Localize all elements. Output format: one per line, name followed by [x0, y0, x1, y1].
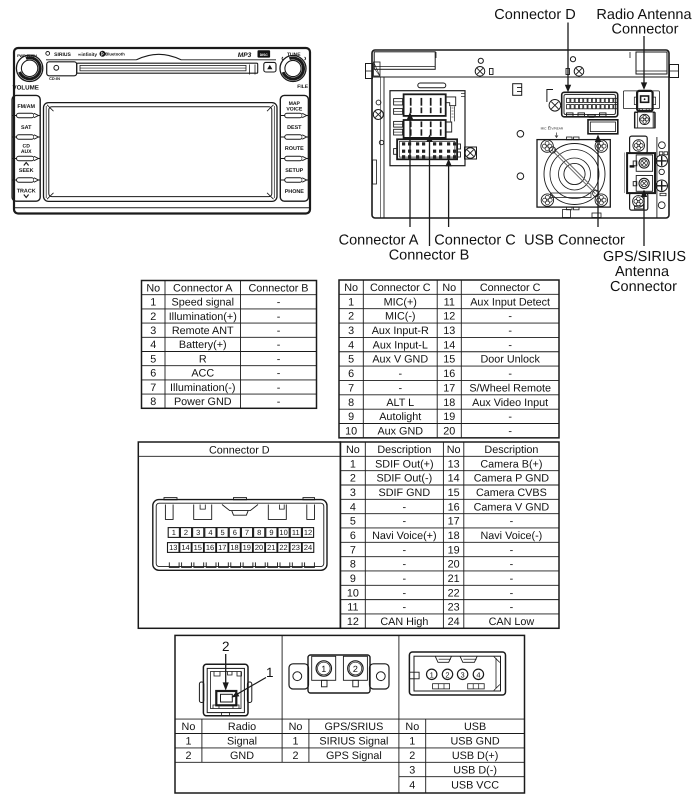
- svg-text:Camera P GND: Camera P GND: [474, 473, 550, 485]
- svg-text:5: 5: [348, 354, 354, 366]
- svg-text:9: 9: [350, 573, 356, 585]
- svg-text:Aux Input-L: Aux Input-L: [373, 339, 428, 351]
- svg-text:-: -: [403, 573, 407, 585]
- svg-text:GPS/SIRIUS: GPS/SIRIUS: [603, 249, 686, 265]
- svg-text:Connector C: Connector C: [370, 282, 431, 294]
- svg-text:Connector D: Connector D: [494, 7, 575, 23]
- svg-text:16: 16: [448, 501, 460, 513]
- svg-text:10: 10: [345, 425, 357, 437]
- svg-text:Aux GND: Aux GND: [377, 425, 423, 437]
- svg-text:Illumination(-): Illumination(-): [170, 382, 235, 394]
- svg-text:Camera CVBS: Camera CVBS: [476, 487, 547, 499]
- svg-text:Battery(+): Battery(+): [179, 339, 227, 351]
- svg-text:MP3: MP3: [238, 52, 252, 59]
- svg-text:11: 11: [347, 602, 358, 614]
- svg-text:-: -: [510, 573, 514, 585]
- svg-text:4: 4: [350, 501, 356, 513]
- svg-text:∞infinity: ∞infinity: [78, 52, 97, 58]
- svg-text:18: 18: [443, 397, 455, 409]
- svg-text:USB D(-): USB D(-): [453, 764, 497, 776]
- svg-text:USB VCC: USB VCC: [451, 780, 499, 792]
- svg-text:-: -: [510, 559, 514, 571]
- svg-text:No: No: [442, 282, 456, 294]
- svg-text:Aux Video Input: Aux Video Input: [472, 397, 548, 409]
- svg-text:Connector C: Connector C: [434, 232, 515, 248]
- svg-text:15: 15: [443, 354, 455, 366]
- svg-text:Camera B(+): Camera B(+): [480, 458, 542, 470]
- svg-text:Connector C: Connector C: [480, 282, 541, 294]
- svg-text:-: -: [508, 339, 512, 351]
- svg-text:Description: Description: [377, 444, 431, 456]
- svg-text:SIRIUS: SIRIUS: [54, 52, 71, 58]
- svg-text:PWR PUSH: PWR PUSH: [17, 54, 37, 58]
- svg-text:-: -: [277, 339, 281, 351]
- svg-text:USB Connector: USB Connector: [524, 232, 625, 248]
- svg-text:3: 3: [150, 325, 156, 337]
- svg-text:22: 22: [279, 543, 287, 552]
- svg-text:24: 24: [304, 543, 312, 552]
- svg-text:4: 4: [348, 339, 354, 351]
- svg-text:USB: USB: [464, 721, 486, 733]
- svg-text:Aux Input Detect: Aux Input Detect: [470, 296, 550, 308]
- svg-text:CD-IN: CD-IN: [49, 76, 60, 81]
- svg-text:-: -: [277, 297, 281, 309]
- svg-text:7: 7: [245, 528, 249, 537]
- svg-text:-: -: [510, 602, 514, 614]
- svg-text:-: -: [277, 325, 281, 337]
- svg-text:23: 23: [448, 602, 460, 614]
- svg-text:12: 12: [304, 528, 312, 537]
- svg-text:2: 2: [350, 473, 356, 485]
- svg-text:Connector B: Connector B: [248, 282, 308, 294]
- svg-text:3: 3: [461, 670, 465, 679]
- svg-text:Illumination(+): Illumination(+): [169, 311, 237, 323]
- svg-text:-: -: [510, 587, 514, 599]
- svg-text:-: -: [510, 544, 514, 556]
- svg-text:Signal: Signal: [227, 736, 257, 748]
- svg-text:No: No: [447, 444, 461, 456]
- svg-text:16: 16: [443, 368, 455, 380]
- svg-text:S/Wheel Remote: S/Wheel Remote: [469, 382, 551, 394]
- svg-text:4: 4: [476, 670, 480, 679]
- svg-text:FM/AM: FM/AM: [17, 104, 35, 110]
- svg-text:SDIF GND: SDIF GND: [379, 487, 431, 499]
- svg-text:2: 2: [353, 664, 358, 674]
- svg-text:-: -: [403, 587, 407, 599]
- svg-text:13: 13: [443, 325, 455, 337]
- svg-text:2: 2: [184, 528, 188, 537]
- svg-text:17: 17: [443, 382, 455, 394]
- svg-text:-: -: [508, 425, 512, 437]
- svg-text:-: -: [510, 516, 514, 528]
- svg-text:Connector A: Connector A: [339, 232, 419, 248]
- svg-text:GND: GND: [230, 750, 254, 762]
- svg-text:No: No: [182, 721, 196, 733]
- svg-text:5: 5: [221, 528, 225, 537]
- svg-text:-: -: [403, 559, 407, 571]
- svg-text:8: 8: [348, 397, 354, 409]
- svg-text:6: 6: [233, 528, 237, 537]
- svg-text:No: No: [289, 721, 303, 733]
- svg-text:20: 20: [255, 543, 263, 552]
- svg-text:7: 7: [150, 382, 156, 394]
- svg-text:2: 2: [445, 670, 449, 679]
- svg-text:TRACK: TRACK: [17, 189, 36, 195]
- svg-text:14: 14: [448, 473, 460, 485]
- svg-text:9: 9: [348, 411, 354, 423]
- svg-text:1: 1: [348, 296, 354, 308]
- svg-text:Navi Voice(-): Navi Voice(-): [480, 530, 542, 542]
- svg-text:19: 19: [443, 411, 455, 423]
- svg-text:15: 15: [194, 543, 202, 552]
- svg-text:2: 2: [409, 750, 415, 762]
- svg-text:22: 22: [448, 587, 460, 599]
- svg-text:FILE: FILE: [297, 84, 308, 90]
- svg-text:No: No: [346, 444, 360, 456]
- svg-text:17: 17: [218, 543, 226, 552]
- svg-text:-: -: [508, 325, 512, 337]
- svg-text:21: 21: [448, 573, 460, 585]
- svg-text:20: 20: [448, 559, 460, 571]
- svg-text:3: 3: [196, 528, 200, 537]
- svg-text:3: 3: [348, 325, 354, 337]
- svg-text:VOLUME: VOLUME: [12, 85, 38, 92]
- svg-text:MIC: MIC: [541, 127, 548, 131]
- svg-text:-: -: [508, 411, 512, 423]
- svg-text:20: 20: [443, 425, 455, 437]
- svg-text:R: R: [199, 353, 207, 365]
- svg-text:Navi Voice(+): Navi Voice(+): [372, 530, 437, 542]
- svg-text:8: 8: [150, 396, 156, 408]
- svg-text:USB GND: USB GND: [450, 736, 499, 748]
- svg-text:6: 6: [150, 368, 156, 380]
- svg-text:12: 12: [443, 311, 455, 323]
- svg-text:9: 9: [269, 528, 273, 537]
- svg-text:Connector: Connector: [612, 22, 679, 38]
- svg-text:DEST: DEST: [287, 125, 302, 131]
- svg-text:Camera V GND: Camera V GND: [474, 501, 550, 513]
- svg-text:7: 7: [350, 544, 356, 556]
- svg-text:SAT: SAT: [21, 125, 32, 131]
- svg-text:4: 4: [208, 528, 212, 537]
- svg-text:-: -: [403, 602, 407, 614]
- svg-text:AUX: AUX: [21, 149, 32, 155]
- svg-text:ALT L: ALT L: [386, 397, 414, 409]
- svg-text:-: -: [403, 516, 407, 528]
- svg-text:17: 17: [448, 516, 460, 528]
- svg-text:No: No: [146, 282, 160, 294]
- svg-text:Connector A: Connector A: [173, 282, 233, 294]
- svg-text:16: 16: [206, 543, 214, 552]
- svg-text:18: 18: [448, 530, 460, 542]
- svg-text:1: 1: [292, 736, 298, 748]
- svg-text:No: No: [405, 721, 419, 733]
- svg-text:Bluetooth: Bluetooth: [105, 52, 125, 57]
- svg-text:6: 6: [350, 530, 356, 542]
- svg-text:-: -: [508, 311, 512, 323]
- svg-text:24: 24: [448, 616, 460, 628]
- svg-text:Power GND: Power GND: [174, 396, 232, 408]
- svg-text:14: 14: [443, 339, 455, 351]
- svg-text:SETUP: SETUP: [285, 168, 303, 174]
- svg-text:-: -: [277, 396, 281, 408]
- svg-text:Description: Description: [484, 444, 538, 456]
- svg-text:1: 1: [430, 670, 434, 679]
- svg-text:CAN Low: CAN Low: [489, 616, 535, 628]
- svg-text:10: 10: [347, 587, 359, 599]
- svg-text:SDIF Out(-): SDIF Out(-): [376, 473, 432, 485]
- svg-text:GPS/SRIUS: GPS/SRIUS: [324, 721, 383, 733]
- svg-text:1: 1: [409, 736, 415, 748]
- svg-text:10: 10: [279, 528, 287, 537]
- svg-text:12V/REAR: 12V/REAR: [548, 127, 564, 131]
- svg-text:-: -: [403, 501, 407, 513]
- svg-text:11: 11: [444, 296, 455, 308]
- svg-text:-: -: [403, 544, 407, 556]
- svg-text:3: 3: [409, 764, 415, 776]
- svg-text:18: 18: [230, 543, 238, 552]
- svg-text:1: 1: [321, 664, 326, 674]
- svg-text:2: 2: [292, 750, 298, 762]
- svg-text:-: -: [277, 368, 281, 380]
- svg-text:DISC: DISC: [260, 53, 269, 57]
- svg-text:1: 1: [266, 665, 274, 680]
- svg-text:Remote ANT: Remote ANT: [172, 325, 234, 337]
- svg-text:No: No: [344, 282, 358, 294]
- svg-text:2: 2: [185, 750, 191, 762]
- svg-text:2: 2: [222, 639, 230, 654]
- svg-text:1: 1: [350, 458, 356, 470]
- svg-text:SIRIUS Signal: SIRIUS Signal: [319, 736, 388, 748]
- svg-text:ACC: ACC: [191, 368, 214, 380]
- svg-text:21: 21: [267, 543, 275, 552]
- svg-text:1: 1: [150, 297, 156, 309]
- svg-text:Connector B: Connector B: [389, 247, 470, 263]
- svg-text:Connector: Connector: [610, 279, 677, 295]
- svg-text:Speed signal: Speed signal: [172, 297, 234, 309]
- svg-text:TUNE: TUNE: [287, 52, 301, 58]
- svg-text:VOICE: VOICE: [286, 107, 302, 113]
- svg-text:-: -: [277, 311, 281, 323]
- svg-text:-: -: [398, 382, 402, 394]
- svg-text:Radio: Radio: [228, 721, 256, 733]
- svg-text:SDIF Out(+): SDIF Out(+): [375, 458, 434, 470]
- svg-text:13: 13: [169, 543, 177, 552]
- svg-text:Antenna: Antenna: [615, 264, 670, 280]
- svg-text:CAN High: CAN High: [380, 616, 428, 628]
- svg-text:2: 2: [150, 311, 156, 323]
- svg-text:5: 5: [150, 353, 156, 365]
- svg-text:6: 6: [348, 368, 354, 380]
- svg-text:11: 11: [292, 528, 300, 537]
- svg-text:1: 1: [172, 528, 176, 537]
- svg-text:PHONE: PHONE: [285, 189, 305, 195]
- svg-text:4: 4: [150, 339, 156, 351]
- svg-text:1: 1: [185, 736, 191, 748]
- svg-text:GPS Signal: GPS Signal: [326, 750, 382, 762]
- svg-text:15: 15: [448, 487, 460, 499]
- svg-text:19: 19: [243, 543, 251, 552]
- svg-text:19: 19: [448, 544, 460, 556]
- svg-text:8: 8: [257, 528, 261, 537]
- svg-text:-: -: [508, 368, 512, 380]
- svg-text:Autolight: Autolight: [379, 411, 421, 423]
- svg-text:Connector D: Connector D: [209, 444, 270, 456]
- svg-text:23: 23: [292, 543, 300, 552]
- svg-text:14: 14: [181, 543, 189, 552]
- svg-text:2: 2: [348, 311, 354, 323]
- svg-text:Door Unlock: Door Unlock: [480, 354, 540, 366]
- svg-text:MIC(-): MIC(-): [385, 311, 416, 323]
- svg-text:SEEK: SEEK: [19, 168, 34, 174]
- svg-text:12: 12: [347, 616, 359, 628]
- svg-text:ROUTE: ROUTE: [285, 146, 304, 152]
- svg-text:4: 4: [409, 780, 415, 792]
- svg-text:-: -: [398, 368, 402, 380]
- svg-text:13: 13: [448, 458, 460, 470]
- svg-text:Aux V GND: Aux V GND: [372, 354, 428, 366]
- svg-text:7: 7: [348, 382, 354, 394]
- svg-text:5: 5: [350, 516, 356, 528]
- svg-text:-: -: [277, 353, 281, 365]
- svg-text:USB D(+): USB D(+): [452, 750, 499, 762]
- svg-text:3: 3: [350, 487, 356, 499]
- svg-text:MIC(+): MIC(+): [384, 296, 417, 308]
- svg-text:8: 8: [350, 559, 356, 571]
- svg-text:Aux Input-R: Aux Input-R: [372, 325, 429, 337]
- svg-text:-: -: [277, 382, 281, 394]
